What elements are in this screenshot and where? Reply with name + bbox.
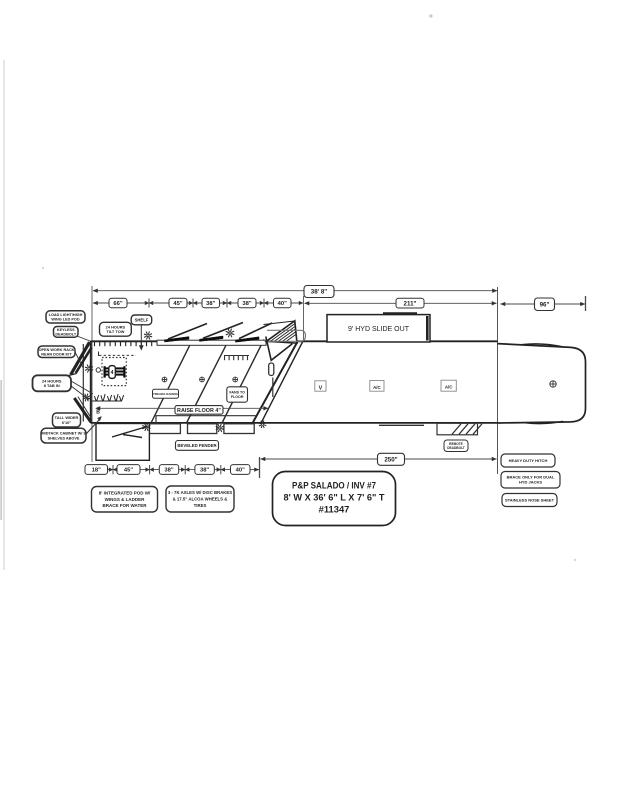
svg-text:45": 45" [124, 468, 133, 474]
svg-text:OPEN WORK RACK: OPEN WORK RACK [39, 348, 75, 352]
svg-text:DEADBOLT: DEADBOLT [55, 333, 76, 337]
svg-text:8 TAB IN: 8 TAB IN [44, 383, 60, 388]
svg-text:38": 38" [164, 468, 173, 474]
svg-text:38": 38" [242, 301, 251, 307]
svg-text:45": 45" [173, 301, 182, 307]
svg-text:8' W X 36' 6" L X 7' 6" T: 8' W X 36' 6" L X 7' 6" T [284, 492, 385, 503]
svg-text:LOAD LIGHT/HIGH: LOAD LIGHT/HIGH [49, 313, 83, 317]
svg-text:WING LED POD: WING LED POD [51, 318, 80, 322]
svg-text:SHELF: SHELF [135, 317, 149, 322]
svg-text:38' 8": 38' 8" [311, 289, 328, 296]
svg-text:TREAD/LOADING: TREAD/LOADING [153, 392, 179, 396]
svg-text:38": 38" [200, 468, 209, 474]
svg-text:WINGS & LADDER: WINGS & LADDER [105, 497, 145, 502]
svg-text:211": 211" [404, 300, 417, 307]
svg-text:DEADBOLT: DEADBOLT [447, 446, 465, 450]
svg-text:40": 40" [236, 468, 245, 474]
svg-text:HEAVY DUTY HITCH: HEAVY DUTY HITCH [509, 458, 548, 463]
svg-text:250": 250" [384, 457, 397, 464]
svg-text:38": 38" [206, 301, 215, 307]
svg-text:6'10": 6'10" [62, 420, 71, 425]
svg-text:TIRES: TIRES [194, 503, 207, 508]
svg-text:FANS TO: FANS TO [229, 391, 245, 395]
svg-text:A/C: A/C [445, 385, 453, 390]
svg-text:SHELVES ABOVE: SHELVES ABOVE [48, 436, 80, 440]
svg-text:BEVELED FENDER: BEVELED FENDER [177, 443, 217, 448]
svg-text:40": 40" [278, 301, 287, 307]
svg-text:66": 66" [113, 301, 122, 307]
svg-text:REAR DOOR KIT: REAR DOOR KIT [41, 352, 72, 356]
svg-text:B: B [96, 410, 100, 416]
svg-text:KEYLESS: KEYLESS [57, 328, 75, 332]
svg-text:TILT TOW: TILT TOW [106, 329, 124, 334]
svg-text:HYD JACKS: HYD JACKS [519, 480, 542, 485]
svg-text:& 17.5" ALCOA WHEELS &: & 17.5" ALCOA WHEELS & [173, 497, 228, 502]
svg-text:A/C: A/C [373, 385, 381, 390]
svg-text:MIDTACK CABINET W/ 3: MIDTACK CABINET W/ 3 [41, 432, 85, 436]
svg-text:V: V [319, 385, 323, 391]
svg-text:96": 96" [540, 301, 550, 308]
svg-text:9' HYD SLIDE OUT: 9' HYD SLIDE OUT [348, 324, 409, 333]
svg-text:8' INTEGRATED POD W/: 8' INTEGRATED POD W/ [99, 491, 151, 496]
svg-text:BRACE FOR WATER: BRACE FOR WATER [103, 503, 148, 508]
svg-text:FLOOR: FLOOR [231, 395, 244, 399]
svg-text:STAINLESS NOSE SHEET: STAINLESS NOSE SHEET [505, 497, 555, 502]
svg-text:#11347: #11347 [319, 504, 350, 515]
svg-text:4: 4 [111, 370, 114, 376]
svg-text:RAISE FLOOR 4": RAISE FLOOR 4" [177, 408, 221, 414]
svg-text:18": 18" [92, 468, 101, 474]
svg-text:3 - 7K AXLES W/ DISC BRAKES: 3 - 7K AXLES W/ DISC BRAKES [168, 490, 232, 495]
svg-text:P&P SALADO / INV #7: P&P SALADO / INV #7 [292, 480, 376, 491]
